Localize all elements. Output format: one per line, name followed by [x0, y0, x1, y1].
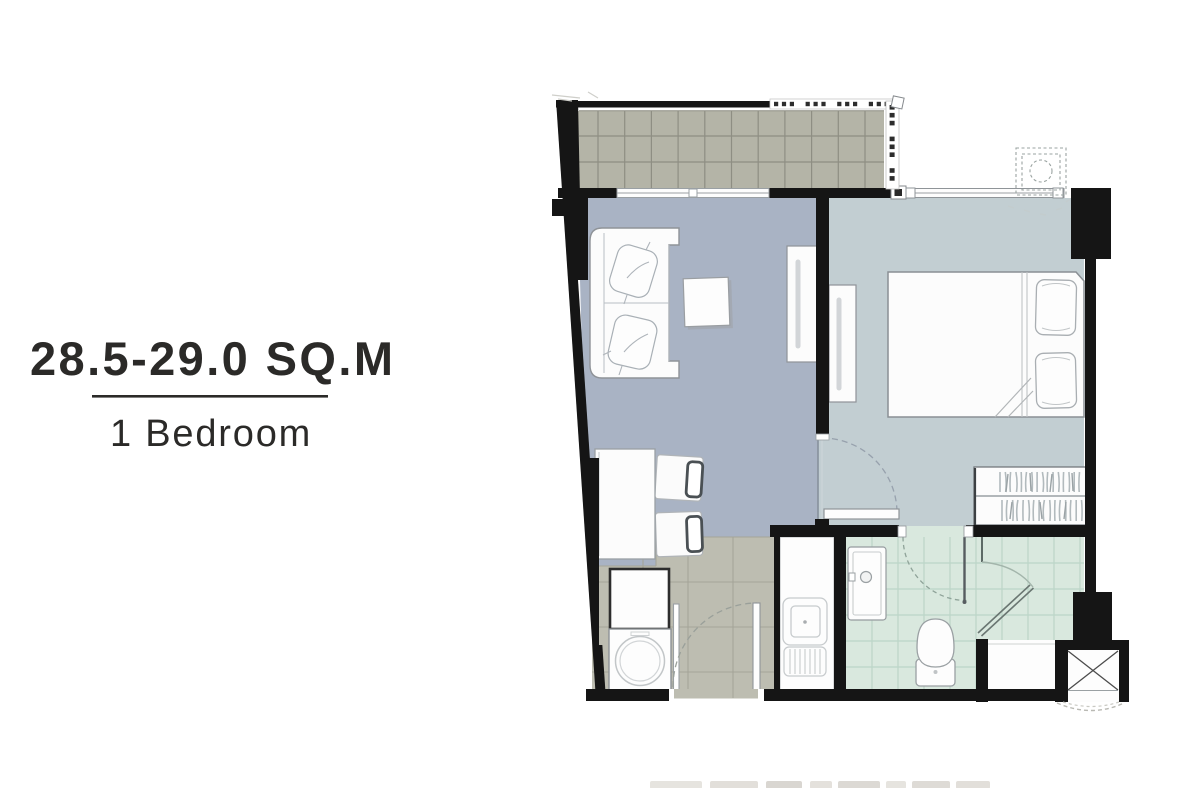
svg-text:28.5-29.0 SQ.M: 28.5-29.0 SQ.M — [30, 332, 395, 385]
svg-text:1 Bedroom: 1 Bedroom — [110, 413, 312, 455]
